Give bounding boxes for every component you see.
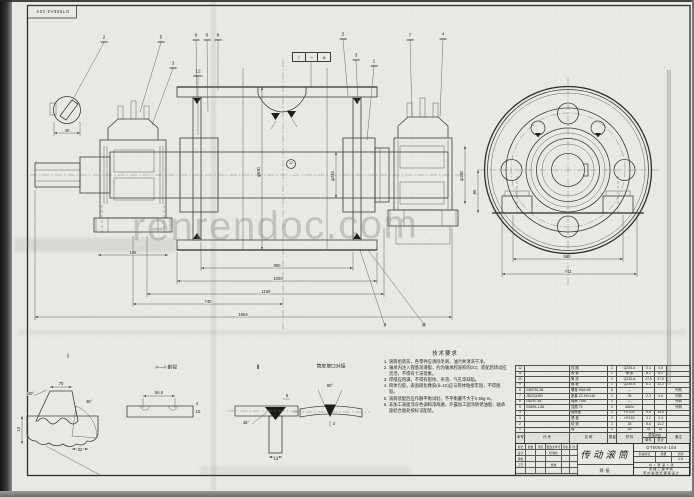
- dimension-label: 12: [289, 162, 294, 166]
- part-callout-number: 8: [215, 33, 222, 40]
- dimension-label: Ⅰ: [67, 354, 70, 360]
- dimension-label: 10: [17, 426, 21, 432]
- stage-label: 阶段标记: [634, 452, 656, 456]
- dimension-label: Ⅱ: [383, 324, 386, 329]
- signature-cell: [516, 468, 526, 474]
- technical-requirement-text: 非加工表面涂灰色调和漆两遍，外露加工面涂防锈油脂；轴承座结合面处按标记配装。: [389, 402, 508, 414]
- dimension-label: 1854: [238, 313, 248, 317]
- technical-requirements-title: 技术要求: [382, 349, 508, 357]
- technical-requirement-item: 4.筒体包胶，表面硫化橡胶(δ=10)应与筒体粘接牢固，不得脱胶。: [382, 383, 508, 395]
- parts-list-header: 序号: [516, 433, 525, 443]
- parts-list-table: 12挡 圈2Q235-A0.40.811胶 板1橡 胶8.28.210筒 皮1Q…: [515, 365, 691, 444]
- technical-requirement-number: 4.: [382, 383, 389, 395]
- dimension-label: 742: [564, 270, 572, 274]
- dimension-label: φ630: [257, 167, 261, 178]
- dimension-label: 1150: [261, 290, 271, 294]
- technical-requirement-item: 6.非加工表面涂灰色调和漆两遍，外露加工面涂防锈油脂；轴承座结合面处按标记配装。: [382, 402, 508, 414]
- dimension-label: 32: [77, 448, 83, 452]
- dimension-label: 740: [204, 300, 212, 304]
- part-callout-number: 1: [371, 59, 378, 66]
- dimension-label: 70: [58, 382, 64, 386]
- dimension-label: 45°: [85, 400, 92, 404]
- dimension-label: 560: [563, 255, 571, 259]
- title-right-panel: DTⅡ05A4-104 阶段标记 质量 比例 1:5 共 1 张 第 1 张 机…: [634, 444, 689, 475]
- organization: 机械工程学院 带式输送机课程设计: [634, 468, 689, 477]
- technical-requirement-item: 2.轴承内注入锂基润滑脂，约为轴承腔容积的2/3；装配后转动应灵活，不得有卡滞现…: [382, 365, 508, 377]
- mass-value: [656, 457, 672, 463]
- signature-cell: [536, 468, 546, 474]
- dimension-label: 60°: [326, 384, 333, 388]
- dimension-label: φ245: [331, 171, 335, 182]
- scanned-engineering-drawing: renrendoc.com DTⅡ05A4-104 /~a ⅠⅡA—A 剖视筒皮…: [0, 0, 694, 497]
- technical-requirement-text: 筒体包胶，表面硫化橡胶(δ=10)应与筒体粘接牢固，不得脱胶。: [389, 383, 508, 395]
- signature-cell: [526, 468, 536, 474]
- dimension-label: 40: [64, 129, 70, 133]
- technical-requirement-number: 2.: [382, 365, 389, 377]
- part-callout-number: 3: [170, 61, 177, 68]
- dimension-label: 56.5: [154, 391, 163, 395]
- drawing-number: DTⅡ05A4-104: [634, 444, 689, 452]
- dimension-label: 95: [473, 189, 477, 195]
- dimension-label: 4: [195, 402, 198, 406]
- parts-list-header: 代 号: [525, 433, 570, 443]
- part-callout-number: 4: [440, 32, 447, 39]
- part-callout-number: 5: [158, 35, 165, 42]
- material-note: 焊接: [578, 464, 633, 477]
- signature-grid: 标记处数分区更改文件号签名年.月.日设计标准化审核工艺批准: [516, 444, 578, 475]
- parts-list-header: 名 称: [570, 433, 608, 443]
- dimension-label: 850: [273, 264, 281, 268]
- dimension-label: 45°: [242, 421, 249, 425]
- technical-requirements: 技术要求 1.滚筒组装前，各零件应清除毛刺、油污并清洗干净。2.轴承内注入锂基润…: [382, 349, 508, 414]
- technical-requirements-list: 1.滚筒组装前，各零件应清除毛刺、油污并清洗干净。2.轴承内注入锂基润滑脂，约为…: [382, 359, 508, 414]
- dimension-label: 165: [129, 251, 137, 255]
- dimension-label: 6: [285, 394, 288, 398]
- dimension-label: 1050: [273, 277, 283, 281]
- dimension-label: Ⅱ: [256, 365, 260, 371]
- parts-list-header: 数量: [608, 433, 617, 443]
- dimension-label: 40°: [27, 392, 34, 396]
- part-callout-number: 3: [353, 53, 360, 60]
- part-callout-number: 9: [193, 33, 200, 40]
- parts-list-header: 材 料: [617, 433, 643, 443]
- part-callout-number: 2: [101, 35, 108, 42]
- organization-line2: 带式输送机课程设计: [643, 472, 680, 476]
- part-callout-number: 6: [204, 33, 211, 40]
- dimension-label: 筒皮坡口对接: [316, 366, 346, 371]
- part-callout-number: 12: [193, 69, 202, 76]
- signature-cell: [546, 468, 562, 474]
- parts-list-header: 备注: [667, 433, 691, 443]
- dimension-label: 14: [273, 457, 279, 461]
- dimension-label: 2: [332, 422, 335, 426]
- part-callout-number: 7: [407, 33, 414, 40]
- part-callout-number: 2: [340, 32, 347, 39]
- dimension-label: 10: [195, 410, 201, 414]
- scale-value: 1:5: [672, 457, 689, 463]
- technical-requirement-text: 轴承内注入锂基润滑脂，约为轴承腔容积的2/3；装配后转动应灵活，不得有卡滞现象。: [389, 365, 508, 377]
- dimension-label: A—A 剖视: [155, 367, 178, 372]
- drawing-title: 传动滚筒: [578, 444, 633, 464]
- mass-label: 质量: [656, 452, 672, 456]
- dimension-label: Ⅲ: [422, 324, 426, 329]
- technical-requirement-number: 6.: [382, 402, 389, 414]
- signature-cell: [562, 468, 570, 474]
- title-block: 标记处数分区更改文件号签名年.月.日设计标准化审核工艺批准 传动滚筒 焊接 DT…: [515, 443, 690, 476]
- dimension-label: φ180: [460, 171, 464, 182]
- title-center-panel: 传动滚筒 焊接: [578, 444, 634, 475]
- scale-label: 比例: [672, 452, 689, 456]
- signature-cell: [570, 468, 578, 474]
- stage-value: [634, 457, 656, 463]
